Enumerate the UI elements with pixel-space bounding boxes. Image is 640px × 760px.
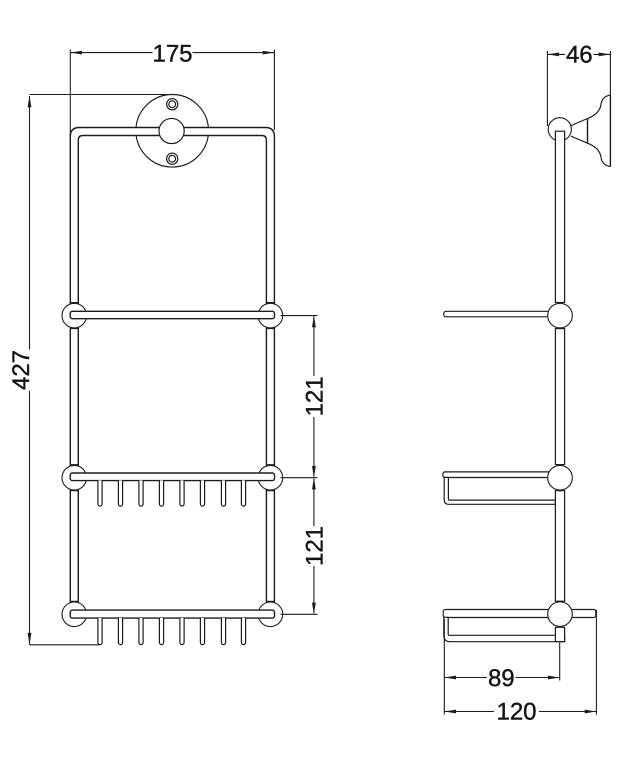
svg-text:121: 121 [302, 526, 329, 566]
svg-text:427: 427 [8, 350, 35, 390]
svg-text:120: 120 [496, 698, 536, 725]
svg-text:121: 121 [302, 376, 329, 416]
svg-text:175: 175 [152, 40, 192, 67]
svg-text:46: 46 [566, 41, 593, 68]
svg-text:89: 89 [488, 665, 515, 692]
